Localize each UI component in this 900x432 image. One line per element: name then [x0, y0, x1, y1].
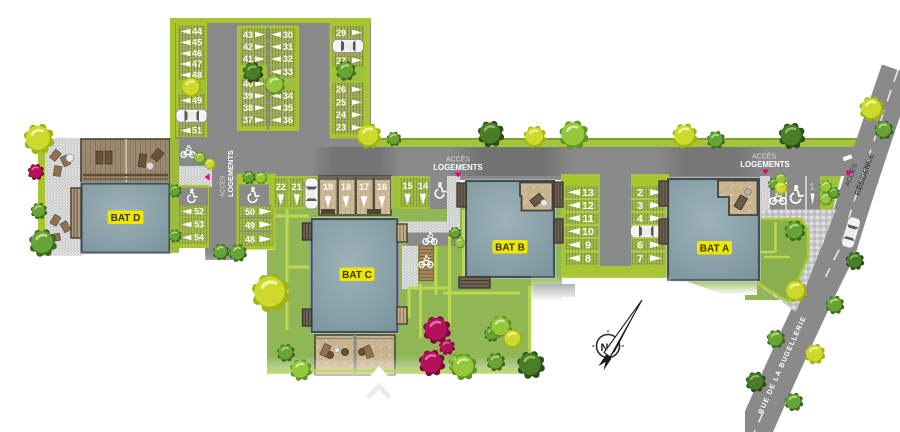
svg-text:15: 15	[402, 181, 412, 191]
svg-text:35: 35	[283, 103, 293, 113]
svg-text:LOGEMENTS: LOGEMENTS	[226, 150, 235, 197]
svg-text:BAT D: BAT D	[111, 213, 141, 224]
svg-text:54: 54	[194, 233, 204, 243]
svg-text:BAT B: BAT B	[495, 243, 525, 254]
svg-text:37: 37	[243, 115, 253, 125]
svg-text:8: 8	[585, 253, 591, 265]
svg-text:23: 23	[336, 123, 346, 133]
svg-text:39: 39	[243, 91, 253, 101]
svg-text:45: 45	[192, 38, 202, 48]
svg-text:43: 43	[243, 30, 253, 40]
svg-text:48: 48	[245, 235, 255, 245]
svg-text:LOGEMENTS: LOGEMENTS	[740, 160, 789, 169]
svg-text:24: 24	[336, 110, 346, 120]
svg-text:10: 10	[582, 226, 594, 238]
svg-text:47: 47	[192, 59, 202, 69]
svg-text:42: 42	[243, 42, 253, 52]
svg-text:52: 52	[194, 207, 204, 217]
svg-text:51: 51	[192, 126, 202, 136]
svg-text:13: 13	[582, 187, 594, 199]
svg-text:31: 31	[283, 42, 293, 52]
svg-text:19: 19	[323, 182, 333, 192]
svg-text:22: 22	[276, 182, 286, 192]
svg-text:34: 34	[283, 91, 293, 101]
svg-text:32: 32	[283, 54, 293, 64]
svg-text:2: 2	[637, 187, 643, 199]
svg-text:11: 11	[582, 213, 593, 225]
svg-text:LOGEMENTS: LOGEMENTS	[433, 163, 482, 172]
svg-text:49: 49	[192, 96, 202, 106]
svg-text:16: 16	[377, 182, 387, 192]
svg-text:49: 49	[245, 221, 255, 231]
svg-text:6: 6	[637, 240, 643, 252]
svg-text:18: 18	[341, 182, 351, 192]
svg-text:41: 41	[243, 54, 253, 64]
svg-text:44: 44	[192, 27, 202, 37]
svg-text:25: 25	[336, 98, 346, 108]
svg-text:BAT C: BAT C	[342, 270, 372, 281]
svg-text:17: 17	[359, 182, 369, 192]
svg-text:21: 21	[292, 182, 302, 192]
svg-text:9: 9	[585, 240, 591, 252]
svg-text:26: 26	[336, 85, 346, 95]
svg-text:12: 12	[582, 200, 594, 212]
svg-text:53: 53	[194, 220, 204, 230]
svg-text:46: 46	[192, 49, 202, 59]
svg-text:1: 1	[809, 182, 815, 193]
svg-text:BAT A: BAT A	[700, 244, 729, 255]
svg-text:30: 30	[283, 30, 293, 40]
svg-text:7: 7	[637, 253, 643, 265]
svg-text:33: 33	[283, 67, 293, 77]
svg-text:36: 36	[283, 115, 293, 125]
svg-text:50: 50	[245, 207, 255, 217]
svg-text:38: 38	[243, 103, 253, 113]
svg-text:3: 3	[637, 200, 643, 212]
svg-text:29: 29	[336, 28, 346, 38]
svg-text:14: 14	[418, 181, 428, 191]
